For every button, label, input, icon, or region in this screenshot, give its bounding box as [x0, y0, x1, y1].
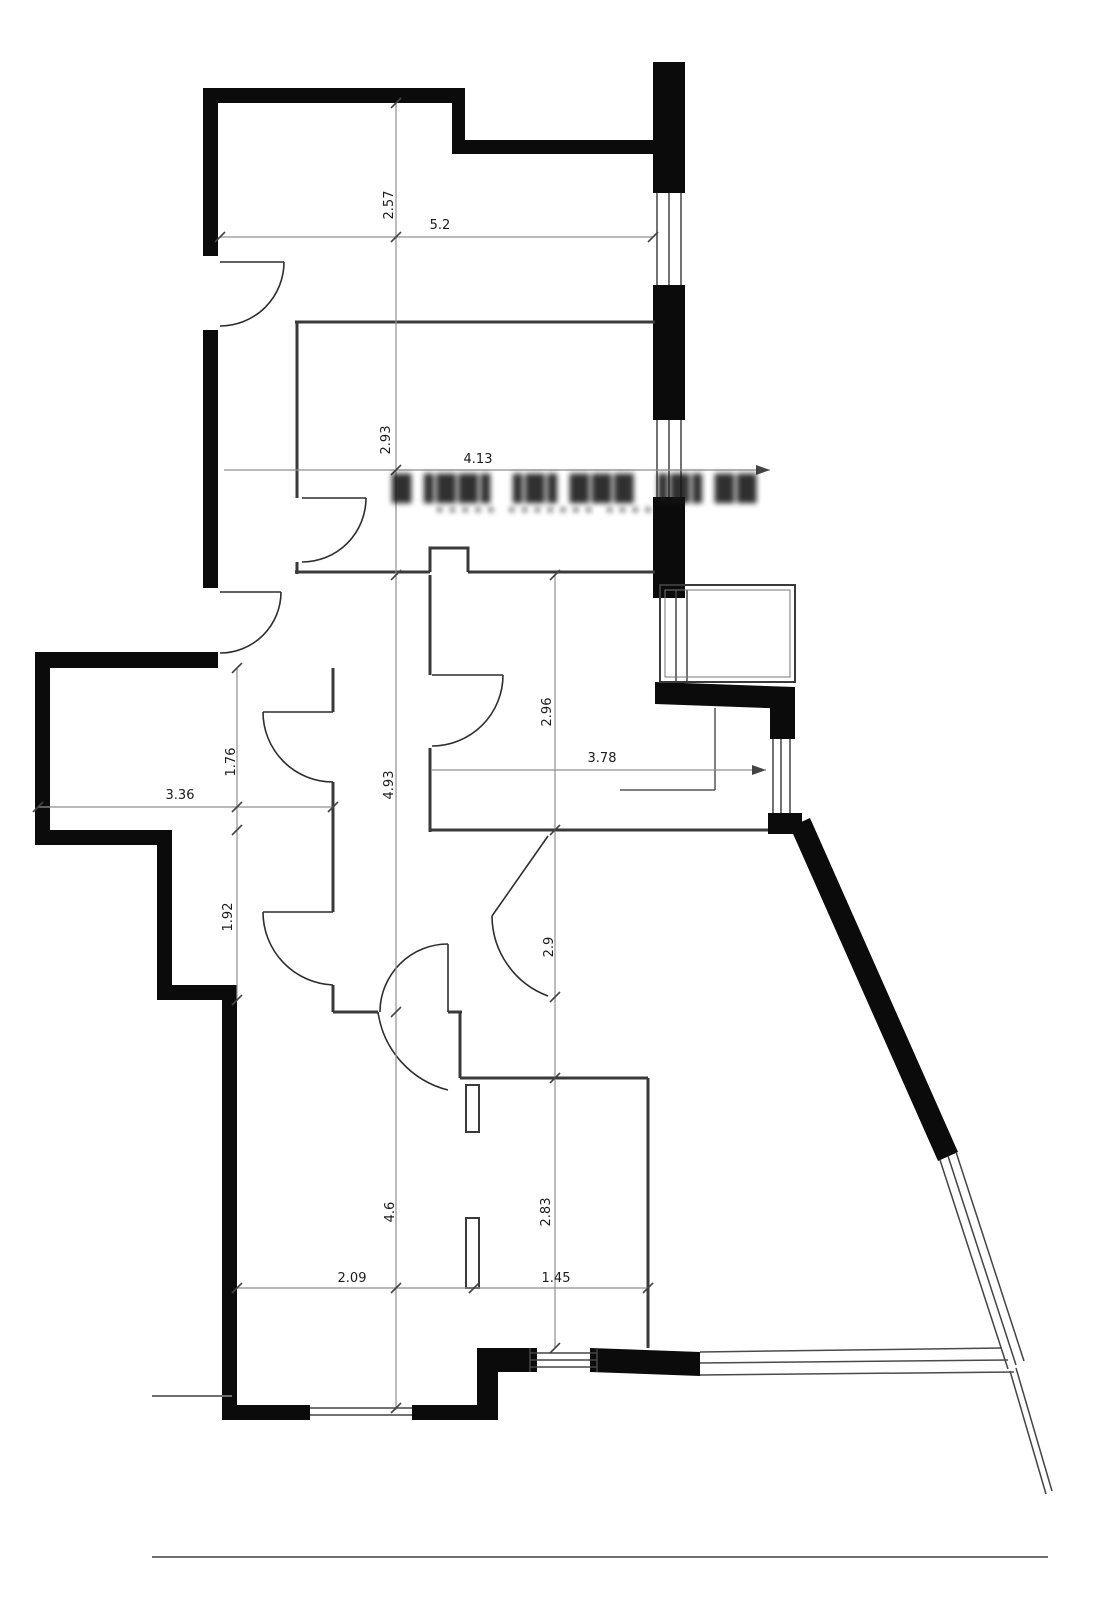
bottomroom-stub-upper: [466, 1085, 479, 1132]
arrow-midroom-width: [752, 765, 766, 775]
wall-left-upper: [203, 88, 218, 256]
wall-bottom-d: [590, 1348, 700, 1376]
dim-label-4-13: 4.13: [464, 452, 493, 467]
dim-label-1-45: 1.45: [542, 1271, 571, 1286]
dim-label-4-93: 4.93: [382, 771, 397, 800]
ground-lines: [152, 1396, 1048, 1557]
exterior-walls: [35, 62, 958, 1420]
floor-plan-page: 2.57 5.2 2.93 4.13 2.96 3.78 1.76 3.36 4…: [0, 0, 1113, 1600]
balcony-outline-inner: [665, 590, 790, 677]
wall-bottom-c: [477, 1348, 537, 1372]
watermark-line2: ▪▪▪▪▪ ▪▪▪▪▪▪▪ ▪▪▪▪: [428, 502, 664, 517]
door-bay-upper: [263, 712, 333, 782]
dim-label-2-57: 2.57: [382, 191, 397, 220]
corridor-notch: [430, 548, 468, 572]
column-mid: [653, 285, 685, 420]
wall-left-mid: [203, 330, 218, 588]
terrace-lines: [700, 1348, 1014, 1375]
door-room1: [302, 498, 366, 562]
wall-left-lower-step: [157, 830, 172, 1000]
door-midroom-lower: [492, 836, 548, 996]
window-right-side: [773, 739, 790, 813]
wall-left-lower: [222, 1000, 237, 1420]
door-left-upper: [220, 262, 284, 326]
dim-label-2-93: 2.93: [379, 426, 394, 455]
column-upper: [653, 62, 685, 193]
dim-label-1-76: 1.76: [224, 748, 239, 777]
floor-plan-svg: 2.57 5.2 2.93 4.13 2.96 3.78 1.76 3.36 4…: [0, 0, 1113, 1600]
window-bottom-center: [530, 1348, 597, 1372]
door-bay-lower: [263, 912, 333, 985]
wall-bottom-a: [222, 1405, 310, 1420]
dim-label-3-78: 3.78: [588, 751, 617, 766]
dim-label-4-6: 4.6: [383, 1202, 398, 1223]
wall-left-connector: [157, 985, 237, 1000]
window-bottom-left: [310, 1408, 412, 1415]
dim-label-5-2: 5.2: [430, 218, 451, 233]
doors: [220, 262, 548, 1090]
dim-label-2-9: 2.9: [542, 937, 557, 958]
window-balcony: [676, 590, 687, 682]
balcony-wall-bottom: [655, 682, 795, 709]
bay-wall-left: [35, 652, 50, 845]
dim-label-1-92: 1.92: [221, 903, 236, 932]
bay-wall-bottom: [35, 830, 172, 845]
wall-diagonal: [790, 818, 958, 1161]
bottomroom-stub-lower: [466, 1218, 479, 1288]
dim-label-2-96: 2.96: [540, 698, 555, 727]
dimension-ticks: [33, 98, 658, 1413]
dim-label-2-09: 2.09: [338, 1271, 367, 1286]
dim-label-2-83: 2.83: [539, 1198, 554, 1227]
watermark-line1: █▐██▌▐█▌███ ▐█▌██: [392, 474, 698, 503]
balcony-outline: [660, 585, 795, 682]
dim-label-3-36: 3.36: [166, 788, 195, 803]
door-midroom: [432, 675, 503, 746]
door-left-lower: [220, 592, 281, 653]
wall-right-a: [770, 705, 795, 739]
bay-wall-top: [35, 652, 218, 668]
window-diagonal: [940, 1152, 1052, 1494]
wall-top-second: [452, 140, 658, 154]
window-column-upper: [657, 193, 681, 285]
wall-top: [203, 88, 465, 103]
door-hall-bottom: [378, 944, 448, 1090]
